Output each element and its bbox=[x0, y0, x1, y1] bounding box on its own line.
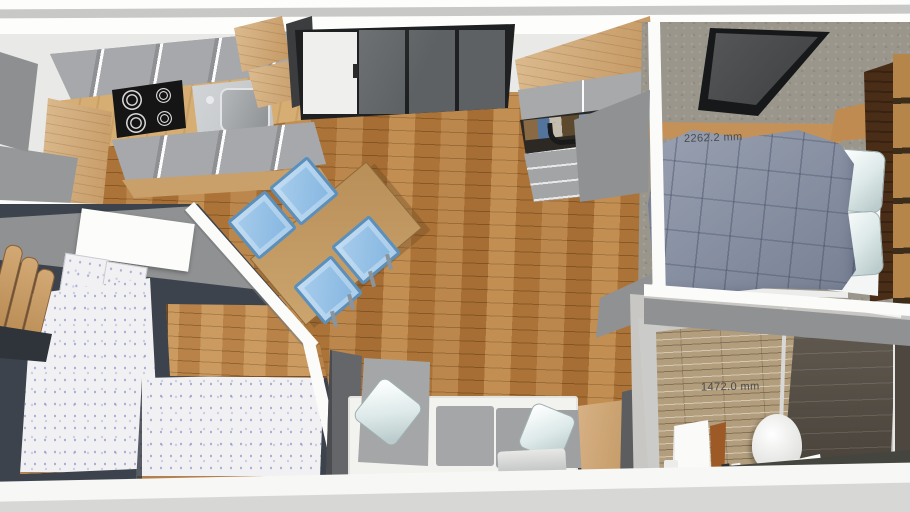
sliding-glass-door[interactable] bbox=[295, 24, 515, 120]
door-handle-icon bbox=[353, 64, 358, 78]
burner-icon bbox=[126, 113, 146, 133]
kitchen-corner-cabinet[interactable] bbox=[0, 46, 42, 152]
door-panel-white bbox=[303, 32, 357, 114]
bed-speckled-bottom[interactable] bbox=[136, 366, 328, 482]
kitchen-cooktop[interactable] bbox=[112, 80, 186, 138]
door-glass-panels bbox=[359, 30, 505, 114]
bed-blue-duvet[interactable] bbox=[648, 120, 856, 296]
faucet-icon bbox=[206, 96, 214, 104]
sofa-seat-cushion[interactable] bbox=[436, 406, 494, 466]
floorplan-3d-viewport[interactable]: 2262.2 mm 1472.0 mm bbox=[0, 0, 910, 512]
wardrobe-cubbies[interactable] bbox=[893, 54, 910, 304]
dimension-label-bedroom[interactable]: 2262.2 mm bbox=[684, 131, 743, 145]
dimension-label-bathroom[interactable]: 1472.0 mm bbox=[701, 380, 760, 393]
burner-icon bbox=[157, 111, 172, 126]
bathroom-door[interactable] bbox=[576, 396, 628, 480]
burner-icon bbox=[122, 90, 142, 110]
burner-icon bbox=[156, 88, 171, 103]
